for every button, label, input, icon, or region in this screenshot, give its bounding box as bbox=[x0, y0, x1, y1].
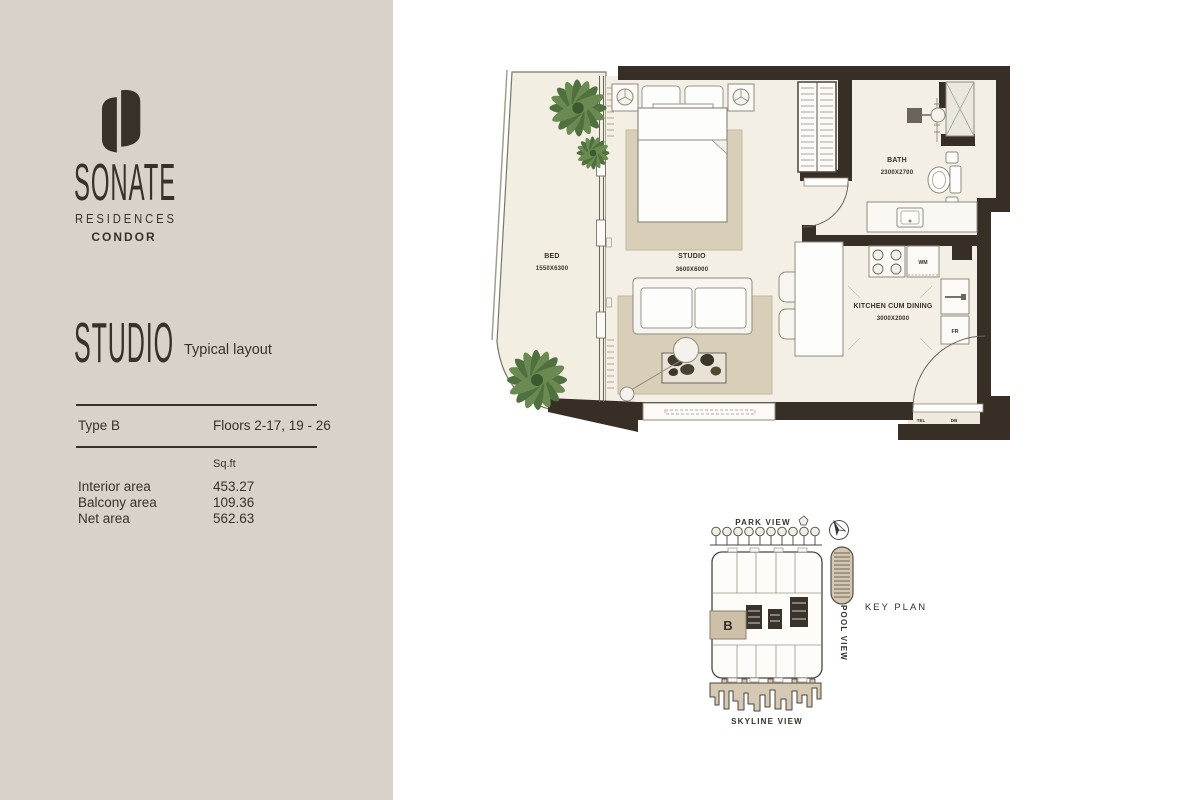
area-row-value: 453.27 bbox=[213, 480, 254, 494]
balcony-name-label: BED bbox=[544, 253, 559, 260]
north-arrow-icon bbox=[825, 516, 852, 543]
divider-bottom bbox=[76, 446, 317, 448]
brand-logo-icon bbox=[92, 90, 146, 156]
bath-name-label: BATH bbox=[887, 157, 907, 164]
unit-type-label: Type B bbox=[78, 419, 120, 433]
tel-label: TEL bbox=[917, 418, 926, 423]
area-row-value: 109.36 bbox=[213, 496, 254, 510]
park-view-label: PARK VIEW bbox=[735, 518, 791, 527]
unit-subtitle: Typical layout bbox=[184, 343, 272, 358]
kitchen-name-label: KITCHEN CUM DINING bbox=[853, 303, 932, 310]
bed bbox=[638, 108, 727, 222]
shower-rose-icon bbox=[931, 108, 945, 122]
wardrobe bbox=[798, 82, 836, 172]
area-unit-header: Sq.ft bbox=[213, 459, 236, 470]
pool-view-label: POOL VIEW bbox=[839, 605, 848, 661]
brochure-page: SONATE RESIDENCES CONDOR STUDIO Typical … bbox=[0, 0, 1200, 800]
unit-title: STUDIO bbox=[74, 315, 174, 372]
sofa-cushion bbox=[695, 288, 746, 328]
toilet bbox=[928, 167, 950, 193]
brand-tagline: CONDOR bbox=[74, 231, 174, 243]
skyline bbox=[710, 679, 821, 711]
building-footprint: B bbox=[710, 548, 822, 682]
keyplan-title: KEY PLAN bbox=[865, 602, 927, 613]
bath-door-leaf bbox=[804, 178, 848, 186]
area-row-label: Balcony area bbox=[78, 496, 157, 510]
db-label: DB bbox=[951, 418, 958, 423]
shower-head-icon bbox=[907, 108, 922, 123]
kitchen-dims-label: 3000X2000 bbox=[877, 316, 910, 322]
brand-name: SONATE bbox=[74, 157, 176, 209]
studio-dims-label: 3600X6000 bbox=[676, 267, 709, 273]
unit-floors-label: Floors 2-17, 19 - 26 bbox=[213, 419, 331, 433]
wm-label: WM bbox=[918, 260, 927, 266]
toilet-tank bbox=[950, 166, 961, 193]
brand-subtitle: RESIDENCES bbox=[75, 213, 177, 226]
bath-dims-label: 2300X2700 bbox=[881, 170, 914, 176]
area-row-label: Interior area bbox=[78, 480, 151, 494]
table-bowl bbox=[674, 338, 699, 363]
floor-plan: BED 1550X6300 STUDIO 3600X6000 BATH 2300… bbox=[480, 50, 1020, 450]
divider-top bbox=[76, 404, 317, 406]
balcony-dims-label: 1550X6300 bbox=[536, 266, 569, 272]
key-plan: PARK VIEW bbox=[680, 505, 940, 735]
pool bbox=[831, 547, 853, 604]
entrance-door-leaf bbox=[913, 404, 983, 412]
sidebar-panel: SONATE RESIDENCES CONDOR STUDIO Typical … bbox=[0, 0, 393, 800]
dining-table bbox=[795, 242, 843, 356]
area-row-label: Net area bbox=[78, 512, 130, 526]
sofa-cushion bbox=[641, 288, 692, 328]
floor-lamp-icon bbox=[620, 387, 634, 401]
area-row-value: 562.63 bbox=[213, 512, 254, 526]
skyline-view-label: SKYLINE VIEW bbox=[731, 717, 803, 726]
unit-b-marker: B bbox=[723, 618, 732, 633]
studio-name-label: STUDIO bbox=[678, 253, 706, 260]
fr-label: FR bbox=[952, 329, 959, 335]
